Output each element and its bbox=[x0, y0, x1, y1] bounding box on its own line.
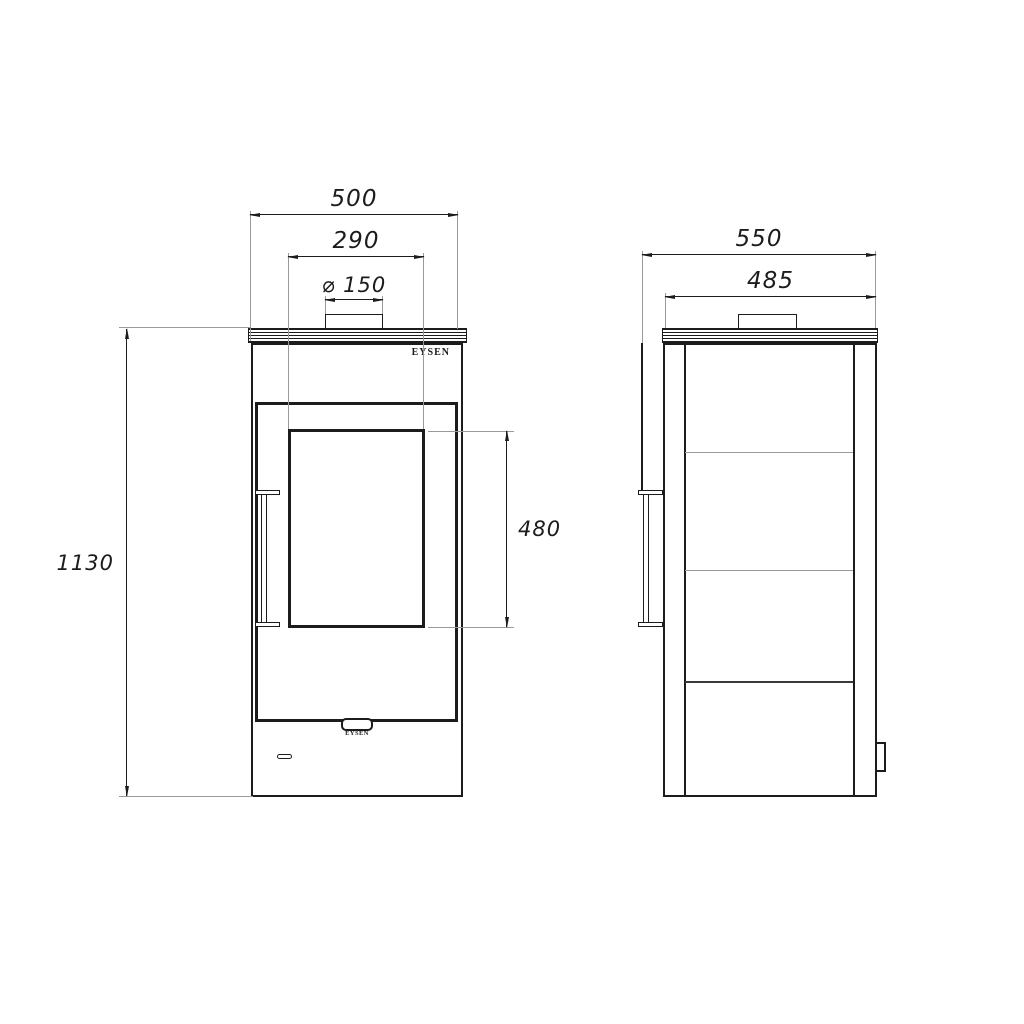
dim-line bbox=[126, 329, 127, 796]
drawing-canvas: EYSEN EYSEN 500 bbox=[0, 0, 1024, 1024]
front-flue-collar bbox=[325, 314, 383, 329]
dim-line bbox=[642, 254, 876, 255]
ext-line-550-left bbox=[642, 251, 643, 343]
side-divider-3 bbox=[685, 681, 853, 683]
dim-label-150: ⌀ 150 bbox=[285, 273, 423, 297]
arrow-right-icon bbox=[448, 213, 459, 217]
arrow-down-icon bbox=[125, 786, 129, 797]
front-top-plate bbox=[248, 328, 467, 343]
ext-line-480-bottom bbox=[428, 627, 514, 628]
arrow-right-icon bbox=[373, 298, 384, 302]
dim-label-550: 550 bbox=[602, 226, 916, 252]
front-handle-bar bbox=[261, 494, 267, 625]
arrow-left-icon bbox=[664, 295, 675, 299]
arrow-right-icon bbox=[866, 295, 877, 299]
dim-line bbox=[288, 256, 424, 257]
ext-line-480-top bbox=[428, 431, 514, 432]
side-top-plate bbox=[662, 328, 878, 343]
arrow-right-icon bbox=[866, 253, 877, 257]
arrow-right-icon bbox=[414, 255, 425, 259]
arrow-left-icon bbox=[324, 298, 335, 302]
side-door-face-line bbox=[641, 343, 643, 491]
side-divider-1 bbox=[685, 452, 853, 453]
brand-badge-text: EYSEN bbox=[345, 730, 369, 737]
dim-label-500: 500 bbox=[210, 186, 498, 212]
dim-line bbox=[665, 296, 876, 297]
brand-logo-text: EYSEN bbox=[408, 347, 450, 358]
dim-label-485: 485 bbox=[625, 268, 916, 294]
side-rear-tab bbox=[875, 742, 886, 772]
side-handle-bracket-top bbox=[638, 490, 663, 495]
side-rear-panel-line bbox=[853, 344, 855, 795]
dim-label-290: 290 bbox=[248, 228, 464, 254]
arrow-up-icon bbox=[505, 430, 509, 441]
dim-label-1130: 1130 bbox=[57, 551, 114, 575]
dim-line bbox=[250, 214, 458, 215]
arrow-left-icon bbox=[249, 213, 260, 217]
side-divider-2 bbox=[685, 570, 853, 571]
ext-line-1130-top bbox=[119, 327, 250, 328]
front-handle-bracket-bottom bbox=[255, 622, 280, 627]
dim-line bbox=[506, 431, 507, 627]
front-air-vent-slot bbox=[277, 754, 292, 759]
brand-badge: EYSEN bbox=[341, 718, 373, 731]
arrow-left-icon bbox=[641, 253, 652, 257]
side-flue-collar bbox=[738, 314, 797, 329]
arrow-down-icon bbox=[505, 617, 509, 628]
front-door-glass bbox=[288, 429, 425, 628]
ext-line-1130-bottom bbox=[119, 796, 253, 797]
arrow-left-icon bbox=[287, 255, 298, 259]
dim-label-480: 480 bbox=[518, 517, 561, 541]
front-handle-bracket-top bbox=[255, 490, 280, 495]
side-handle-bar bbox=[643, 494, 649, 625]
side-handle-bracket-bottom bbox=[638, 622, 663, 627]
ext-line-290-right bbox=[423, 253, 424, 429]
arrow-up-icon bbox=[125, 328, 129, 339]
